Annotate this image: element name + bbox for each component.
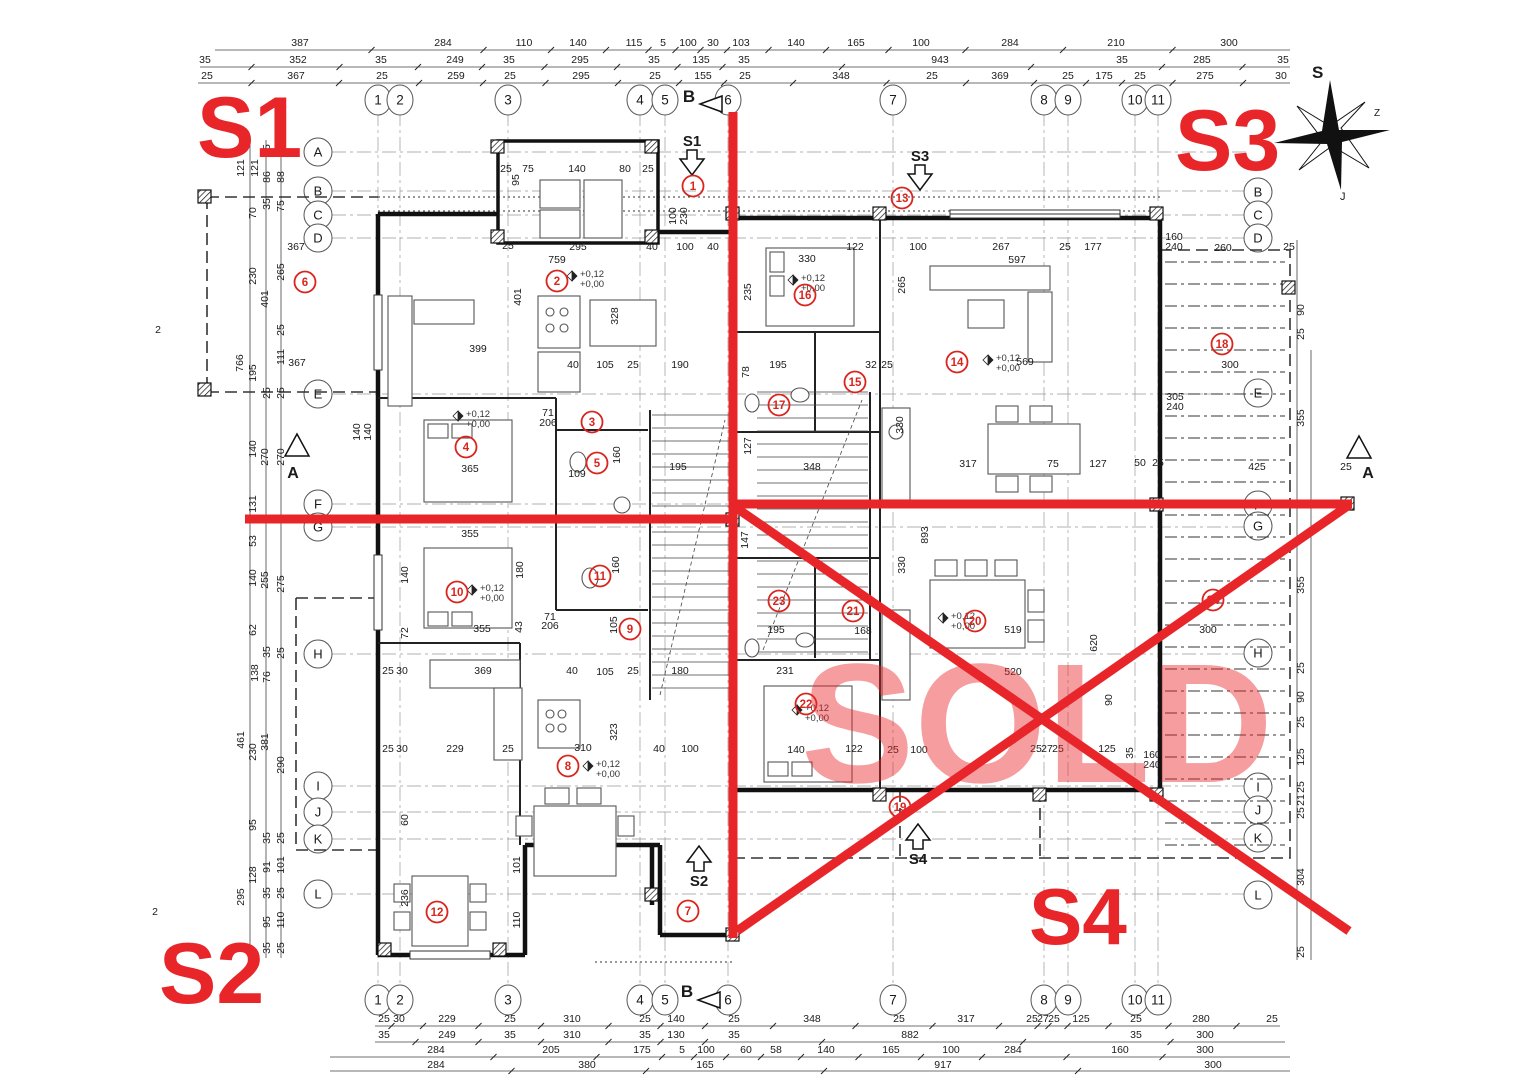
dimension-value: 25: [275, 832, 287, 844]
grid-row-bubble: C: [313, 208, 322, 223]
dimension-value: 275: [1196, 70, 1214, 82]
dimension-value: 35: [728, 1029, 740, 1041]
dimension-value: 25: [382, 743, 394, 755]
dimension-value: 284: [427, 1059, 445, 1071]
dimension-value: 30: [396, 665, 408, 677]
dimension-value: 140: [247, 440, 259, 458]
grid-column-bubble: 11: [1151, 93, 1165, 108]
dimension-value: 295: [571, 54, 589, 66]
dimension-value: 91: [261, 861, 273, 873]
dimension-value: 323: [608, 723, 620, 741]
grid-row-bubble: L: [314, 887, 321, 902]
dimension-value: 255: [259, 571, 271, 589]
section-a-left-label: A: [287, 465, 299, 482]
dimension-value: 270: [275, 448, 287, 466]
room-number: 5: [594, 458, 601, 470]
dimension-value: 401: [259, 290, 271, 308]
dimension-value: 369: [474, 665, 492, 677]
dimension-value: 270: [259, 448, 271, 466]
section-s3-arrow-icon: [908, 165, 932, 190]
section-b-bottom-arrow-icon: [698, 992, 720, 1008]
dimension-value: 160: [1111, 1044, 1129, 1056]
dimension-value: 300: [1196, 1029, 1214, 1041]
dimension-value: 380: [578, 1059, 596, 1071]
dimension-value: 25: [376, 70, 388, 82]
room-number: 8: [565, 761, 572, 773]
dimension-value: 882: [901, 1029, 919, 1041]
dimension-value: 25: [378, 1013, 390, 1025]
dimension-value: 25: [627, 359, 639, 371]
dimension-value: 25: [261, 387, 273, 399]
grid-column-bubble: 6: [724, 93, 732, 108]
dimension-value: 235: [742, 283, 754, 301]
dimension-value: 317: [959, 458, 977, 470]
compass-north-label: S: [1312, 63, 1323, 82]
dimension-value: 195: [669, 461, 687, 473]
dimension-value: 111: [275, 349, 287, 365]
dimension-value: 25: [1048, 1013, 1060, 1025]
dimension-value: 381: [259, 733, 271, 751]
dimension-value: 35: [639, 1029, 651, 1041]
dimension-value: 35: [199, 54, 211, 66]
dimension-value: 25: [926, 70, 938, 82]
dimension-value: 128: [247, 866, 259, 884]
section-b-top-arrow-icon: [700, 96, 722, 112]
dimension-value: 127: [1089, 458, 1107, 470]
dimension-value: 265: [896, 276, 908, 294]
floor-plan-image: 1234567891011 1234567891011 ABCDEFGHIJKL…: [0, 0, 1527, 1080]
grid-row-bubble: K: [314, 832, 323, 847]
dimension-value: 330: [798, 253, 816, 265]
dimension-value: 127: [742, 437, 754, 455]
dim-row-bottom-3: 28420517551006058140165100284160300: [427, 1044, 1214, 1060]
dim-row-bottom-1: 2530229253102514025348253172527251252528…: [378, 1013, 1278, 1029]
room-number: 16: [799, 290, 812, 302]
dimension-value: 310: [574, 742, 592, 754]
dim-col-left: 1211213525868870357523026540125766195111…: [234, 143, 287, 954]
dim-row-top-1: 3872841101401155100301031401651002842103…: [291, 37, 1238, 53]
dimension-value: 240: [1166, 401, 1184, 413]
dimension-value: 766: [234, 354, 246, 372]
dimension-value: 100: [676, 241, 694, 253]
dimension-value: 25: [627, 665, 639, 677]
dimension-value: 240: [1165, 241, 1183, 253]
unit-s1-label: S1: [197, 80, 302, 176]
dimension-value: 310: [563, 1029, 581, 1041]
room-number: 18: [1216, 339, 1229, 351]
dimension-value: 100: [912, 37, 930, 49]
dimension-value: 893: [919, 526, 931, 544]
grid-column-bubble: 2: [396, 93, 404, 108]
dimension-value: 230: [678, 207, 690, 225]
grid-column-bubble: 8: [1040, 93, 1048, 108]
dimension-value: 25: [639, 1013, 651, 1025]
dim-row-top-2: 35352352493529535135359433528535: [199, 54, 1289, 70]
dimension-value: 190: [671, 359, 689, 371]
grid-column-bubble: 7: [889, 993, 897, 1008]
grid-row-bubble: A: [314, 145, 323, 160]
dimension-value: 348: [832, 70, 850, 82]
dimension-value: 140: [817, 1044, 835, 1056]
dimension-value: 25: [728, 1013, 740, 1025]
section-s2-arrow-icon: [687, 846, 711, 871]
dimension-value: 25: [275, 324, 287, 336]
dimension-value: 80: [619, 163, 631, 175]
dimension-value: 25: [1283, 241, 1295, 253]
room-number: 17: [773, 400, 786, 412]
grid-row-bubble: K: [1254, 831, 1263, 846]
dimension-value: 40: [653, 743, 665, 755]
level-lower-value: +0,00: [480, 593, 504, 604]
grid-column-bubble: 1: [374, 93, 382, 108]
dimension-value: 304: [1295, 868, 1307, 886]
dimension-value: 425: [1248, 461, 1266, 473]
dimension-value: 25: [275, 942, 287, 954]
dimension-value: 115: [626, 37, 643, 49]
section-a-right-arrow-icon: [1347, 436, 1371, 458]
dimension-value: 206: [539, 417, 557, 429]
unit-s3-label: S3: [1175, 93, 1280, 189]
grid-column-bubble: 3: [504, 93, 512, 108]
room-number: 3: [589, 417, 595, 429]
dimension-value: 284: [1004, 1044, 1022, 1056]
dimension-value: 25: [275, 887, 287, 899]
dimension-value: 160: [610, 556, 622, 574]
dimension-value: 53: [247, 535, 259, 547]
dimension-value: 35: [261, 646, 273, 658]
grid-column-bubble: 4: [636, 993, 644, 1008]
dimension-value: 103: [732, 37, 750, 49]
grid-column-bubble: 11: [1151, 993, 1165, 1008]
dimension-value: 35: [1116, 54, 1128, 66]
dimension-value: 165: [696, 1059, 714, 1071]
dimension-value: 355: [1295, 576, 1307, 594]
dimension-value: 25: [1295, 716, 1307, 728]
dimension-value: 35: [1277, 54, 1289, 66]
dimension-value: 70: [247, 207, 259, 219]
axis-2-label-bottom: 2: [152, 906, 158, 918]
dimension-value: 140: [568, 163, 586, 175]
dimension-value: 195: [247, 364, 259, 382]
dimension-value: 109: [568, 468, 586, 480]
dimension-value: 231: [776, 665, 794, 677]
dimension-value: 140: [247, 569, 259, 587]
dimension-value: 140: [787, 37, 805, 49]
dimension-value: 180: [514, 561, 526, 579]
compass-main-star: [1274, 80, 1390, 190]
dimension-value: 25: [1295, 807, 1307, 819]
dimension-value: 205: [542, 1044, 560, 1056]
dimension-value: 35: [504, 1029, 516, 1041]
dimension-value: 387: [291, 37, 309, 49]
grid-row-bubble: E: [1254, 386, 1263, 401]
dimension-value: 101: [275, 856, 287, 874]
grid-column-bubble: 7: [889, 93, 897, 108]
dimension-value: 295: [235, 888, 247, 906]
dimension-value: 25: [502, 743, 514, 755]
grid-column-bubble: 5: [661, 993, 669, 1008]
dimension-value: 95: [510, 174, 522, 186]
compass-south-label: J: [1340, 191, 1346, 203]
floor-plan-canvas: 1234567891011 1234567891011 ABCDEFGHIJKL…: [0, 0, 1527, 1080]
dimension-value: 25: [1134, 70, 1146, 82]
dimension-value: 348: [803, 1013, 821, 1025]
dimension-value: 348: [803, 461, 821, 473]
dimension-value: 399: [469, 343, 487, 355]
grid-column-bubble: 9: [1064, 93, 1072, 108]
section-s1-label: S1: [683, 133, 701, 150]
dimension-value: 249: [438, 1029, 456, 1041]
grid-column-bubble: 8: [1040, 993, 1048, 1008]
dimension-value: 917: [934, 1059, 952, 1071]
level-marker-icon: [983, 355, 993, 365]
dimension-value: 25: [500, 163, 512, 175]
grid-row-bubble: L: [1254, 888, 1261, 903]
dimension-value: 130: [667, 1029, 685, 1041]
dimension-value: 76: [261, 671, 273, 683]
dimension-value: 25: [739, 70, 751, 82]
compass-west-label: Z: [1374, 108, 1380, 119]
dimension-value: 75: [1047, 458, 1059, 470]
dimension-value: 105: [608, 616, 620, 634]
dimension-value: 140: [362, 423, 374, 441]
grid-row-bubble: H: [313, 647, 322, 662]
dimension-value: 25: [1340, 461, 1352, 473]
room-number: 2: [554, 276, 560, 288]
room-number: 14: [951, 357, 964, 369]
dimension-value: 25: [1295, 328, 1307, 340]
room-number: 12: [431, 907, 444, 919]
dimension-value: 35: [738, 54, 750, 66]
level-marker-icon: [583, 761, 593, 771]
dim-row-top-3: 2536725259252952515525348253692517525275…: [201, 70, 1287, 86]
dimension-value: 122: [846, 241, 864, 253]
unit-s2-label: S2: [159, 926, 264, 1022]
dimension-value: 5: [679, 1044, 685, 1056]
dimension-value: 78: [740, 366, 752, 378]
level-marker-icon: [567, 271, 577, 281]
dimension-value: 284: [1001, 37, 1019, 49]
dimension-value: 284: [434, 37, 452, 49]
level-lower-value: +0,00: [580, 279, 604, 290]
grid-column-bubble: 2: [396, 993, 404, 1008]
dimension-value: 401: [512, 288, 524, 306]
dimension-value: 300: [1196, 1044, 1214, 1056]
dimension-value: 310: [563, 1013, 581, 1025]
dimension-value: 131: [247, 495, 259, 513]
dimension-value: 206: [541, 620, 559, 632]
dimension-value: 35: [378, 1029, 390, 1041]
dimension-value: 25: [1266, 1013, 1278, 1025]
dimension-value: 21: [1295, 794, 1307, 806]
dimension-value: 62: [247, 624, 259, 636]
room-number: 11: [594, 571, 607, 583]
dimension-value: 75: [275, 200, 287, 212]
section-markers: S1 S3 S2 S4 B B A A 2 2: [152, 87, 1374, 1008]
dimension-value: 367: [288, 357, 306, 369]
dimension-value: 147: [739, 531, 751, 549]
dimension-value: 759: [548, 254, 566, 266]
grid-columns-top: 1234567891011: [365, 85, 1171, 988]
dimension-value: 177: [1084, 241, 1102, 253]
dimension-value: 295: [572, 70, 590, 82]
level-lower-value: +0,00: [996, 363, 1020, 374]
room-number: 21: [847, 606, 860, 618]
grid-row-bubble: F: [314, 497, 322, 512]
dimension-value: 275: [275, 575, 287, 593]
level-lower-value: +0,00: [596, 769, 620, 780]
dim-row-bottom-4: 284380165917300: [427, 1059, 1222, 1074]
axis-2-label-left: 2: [155, 324, 161, 336]
dim-row-bottom-2: 3524935310351303588235300: [378, 1029, 1214, 1045]
dimension-value: 25: [649, 70, 661, 82]
dimension-value: 229: [438, 1013, 456, 1025]
dimension-value: 125: [1295, 748, 1307, 766]
room-number: 20: [969, 616, 982, 628]
dimension-value: 100: [942, 1044, 960, 1056]
level-lower-value: +0,00: [466, 419, 490, 430]
grid-row-bubble: J: [315, 805, 322, 820]
dimension-value: 140: [667, 1013, 685, 1025]
dimension-value: 25: [1059, 241, 1071, 253]
dimension-value: 40: [707, 241, 719, 253]
room-number: 1: [690, 181, 697, 193]
unit-s4-label: S4: [1029, 872, 1127, 961]
dimension-value: 25: [1130, 1013, 1142, 1025]
grid-column-bubble: 4: [636, 93, 644, 108]
dimension-value: 249: [446, 54, 464, 66]
section-b-top-label: B: [683, 87, 695, 106]
section-s4-label: S4: [909, 851, 928, 868]
dimension-value: 135: [692, 54, 710, 66]
dimension-value: 461: [235, 731, 247, 749]
dimension-value: 175: [633, 1044, 651, 1056]
dimension-value: 35: [648, 54, 660, 66]
dimension-value: 229: [446, 743, 464, 755]
grid-column-bubble: 9: [1064, 993, 1072, 1008]
dimension-value: 101: [511, 856, 523, 874]
grid-row-bubble: C: [1253, 208, 1262, 223]
dimension-value: 25: [1295, 781, 1307, 793]
section-s3-label: S3: [911, 148, 929, 165]
dimension-value: 597: [1008, 254, 1026, 266]
dimension-value: 165: [882, 1044, 900, 1056]
dimension-value: 355: [473, 623, 491, 635]
grid-column-bubble: 10: [1127, 993, 1142, 1008]
dimension-value: 230: [247, 743, 259, 761]
room-number: 7: [685, 906, 691, 918]
dimension-value: 284: [427, 1044, 445, 1056]
dimension-value: 58: [770, 1044, 782, 1056]
dimension-value: 267: [992, 241, 1010, 253]
dimension-value: 30: [1275, 70, 1287, 82]
dimension-value: 40: [646, 241, 658, 253]
dimension-value: 25: [502, 240, 514, 252]
grid-column-bubble: 6: [724, 993, 732, 1008]
room-number: 15: [849, 377, 862, 389]
dimension-value: 25: [881, 359, 893, 371]
dimension-value: 110: [275, 911, 287, 928]
dimension-value: 165: [847, 37, 865, 49]
dimension-value: 236: [399, 889, 411, 907]
dimension-value: 100: [679, 37, 697, 49]
dimension-value: 160: [611, 446, 623, 464]
dimension-value: 25: [275, 387, 287, 399]
grid-column-bubble: 3: [504, 993, 512, 1008]
dimension-value: 300: [1221, 359, 1239, 371]
dimension-value: 25: [893, 1013, 905, 1025]
dimension-value: 367: [287, 241, 305, 253]
dimension-value: 25: [1152, 457, 1164, 469]
section-s1-arrow-icon: [680, 150, 704, 175]
dimension-value: 300: [1220, 37, 1238, 49]
dimension-value: 365: [461, 463, 479, 475]
dimension-value: 30: [393, 1013, 405, 1025]
dimension-value: 330: [894, 416, 906, 434]
dimension-value: 317: [957, 1013, 975, 1025]
section-a-left-arrow-icon: [285, 434, 309, 456]
sold-label: SOLD: [801, 629, 1273, 819]
dimension-value: 35: [261, 887, 273, 899]
dimension-value: 195: [769, 359, 787, 371]
dimension-value: 35: [503, 54, 515, 66]
dimension-value: 140: [399, 566, 411, 584]
dimension-value: 140: [569, 37, 587, 49]
dimension-value: 175: [1095, 70, 1113, 82]
room-number: 23: [773, 596, 786, 608]
dimension-value: 75: [522, 163, 534, 175]
dimension-value: 5: [660, 37, 666, 49]
dimension-value: 155: [694, 70, 712, 82]
dimension-value: 352: [289, 54, 307, 66]
dimension-value: 290: [275, 756, 287, 774]
grid-row-bubble: I: [316, 779, 320, 794]
dimension-value: 25: [1295, 662, 1307, 674]
grid-column-bubble: 5: [661, 93, 669, 108]
dimension-value: 259: [447, 70, 465, 82]
dim-col-right: 25902535535525902512525212530425: [1283, 241, 1307, 958]
dimension-value: 100: [909, 241, 927, 253]
section-s4-arrow-icon: [906, 824, 930, 849]
dimension-value: 40: [567, 359, 579, 371]
dimension-value: 25: [504, 1013, 516, 1025]
dimension-value: 100: [681, 743, 699, 755]
section-s2-label: S2: [690, 873, 708, 890]
grid-row-bubble: G: [1253, 519, 1263, 534]
dimension-value: 180: [671, 665, 689, 677]
dimension-value: 195: [767, 624, 785, 636]
dimension-value: 330: [896, 556, 908, 574]
dimension-value: 100: [697, 1044, 715, 1056]
dimension-value: 43: [513, 621, 525, 633]
dimension-value: 138: [249, 664, 261, 682]
compass-rose: S J Z: [1274, 63, 1390, 203]
dimension-value: 285: [1193, 54, 1211, 66]
dimension-value: 90: [1295, 304, 1307, 316]
section-b-bottom-label: B: [681, 982, 693, 1001]
dimension-value: 30: [707, 37, 719, 49]
dimension-value: 295: [569, 241, 587, 253]
dimension-value: 30: [396, 743, 408, 755]
dimension-value: 328: [609, 307, 621, 325]
dimension-value: 300: [1204, 1059, 1222, 1071]
dimension-value: 265: [275, 263, 287, 281]
dimension-value: 110: [516, 37, 533, 49]
dimension-value: 35: [1130, 1029, 1142, 1041]
dimension-value: 72: [399, 627, 411, 639]
grid-row-bubble: D: [1253, 231, 1262, 246]
dimension-value: 32: [865, 359, 877, 371]
